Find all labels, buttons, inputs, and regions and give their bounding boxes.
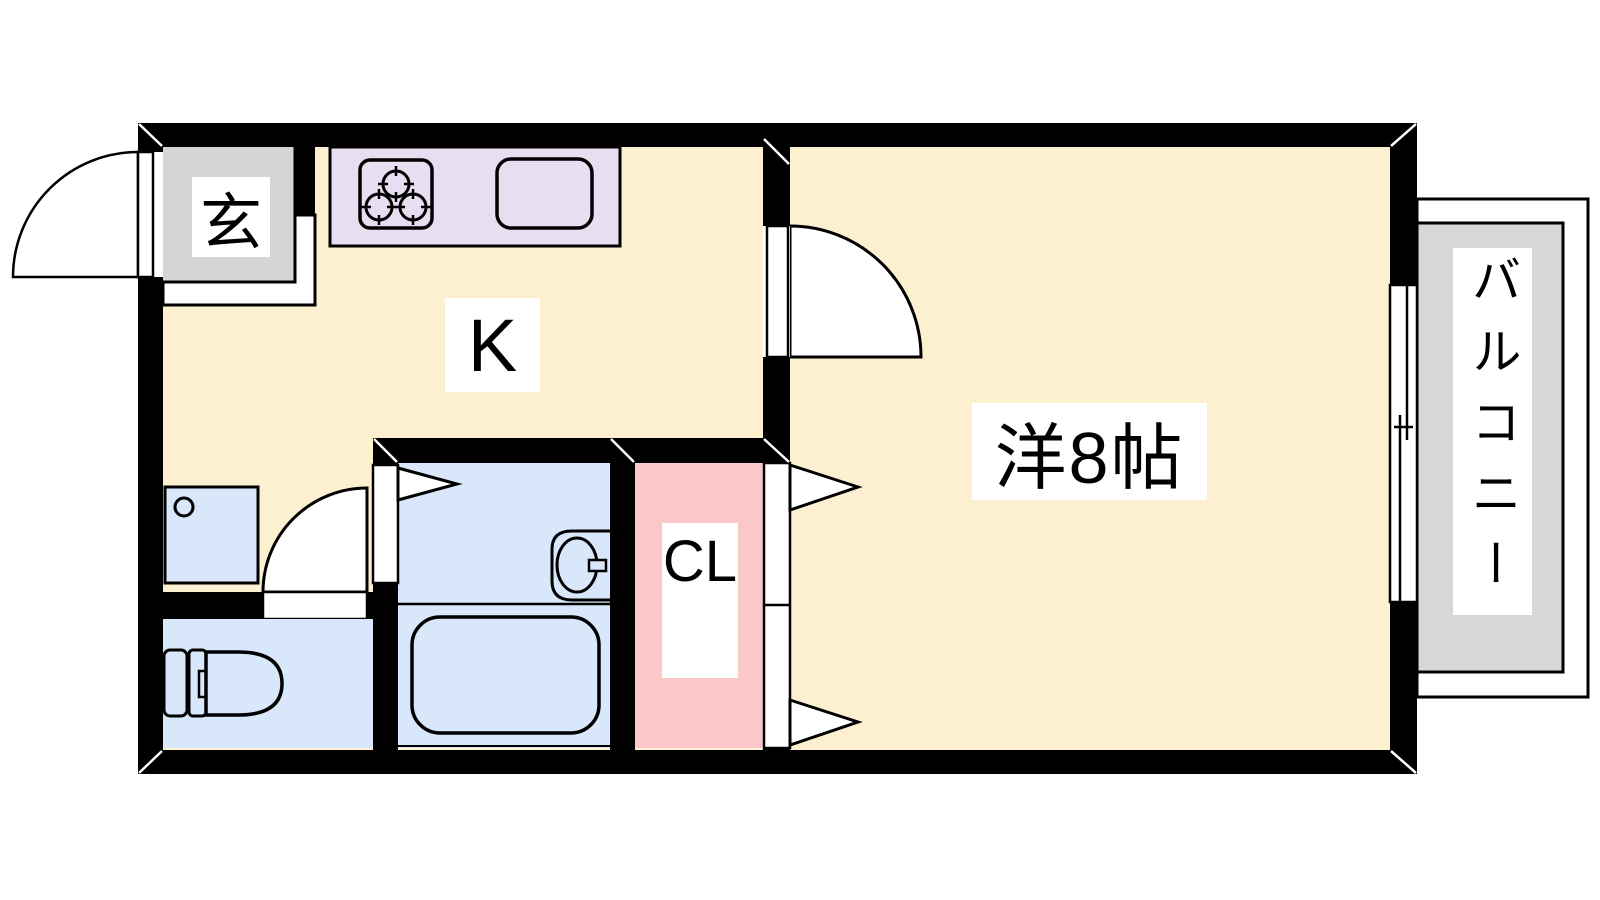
bathroom-door-opening [373,465,398,583]
toilet-door-leaf [263,592,367,619]
western-room-label: 洋8帖 [972,403,1207,500]
entrance-label: 玄 [192,177,270,257]
toilet-tank [164,650,187,716]
sliding-window-icon [1390,285,1417,602]
room-door-leaf [767,226,788,357]
toilet-bowl [206,652,282,715]
kitchen-label: K [445,298,540,392]
entrance-door-arc [13,152,138,277]
floor-plan-drawing [0,0,1600,900]
closet-label: CL [662,523,738,678]
sanitary-top-wall [373,438,790,463]
bathroom-sink-tap [589,560,606,571]
closet-left-wall [610,438,635,750]
entrance-door-leaf [138,152,153,277]
entrance-wall-stub [295,147,315,215]
kitchen-sink-icon [497,159,592,228]
floor-plan-canvas: 玄 K 洋8帖 CL バルコニー [0,0,1600,900]
balcony-label: バルコニー [1453,248,1532,615]
bathtub-icon [412,617,599,733]
